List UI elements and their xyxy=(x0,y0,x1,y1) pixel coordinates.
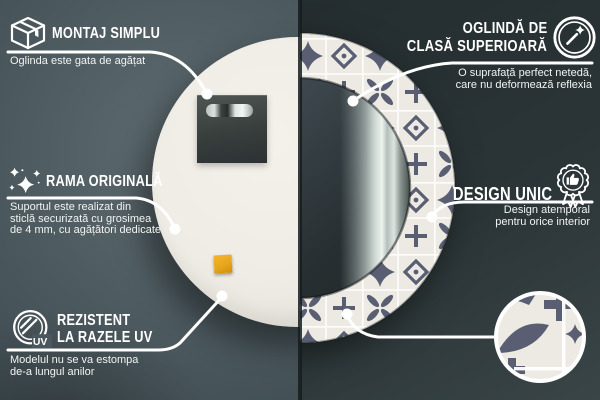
callout-montaj: MONTAJ SIMPLU xyxy=(10,17,187,50)
callout-uv-subtitle: Modelul nu se va estompa de-a lungul ani… xyxy=(10,355,138,378)
dot-rama xyxy=(170,224,181,235)
callout-design-title: DESIGN UNIC xyxy=(431,184,552,205)
callout-uv-title: REZISTENT LA RAZELE UV xyxy=(57,312,176,346)
callout-oglinda-title: OGLINDĂ DE CLASĂ SUPERIOARĂ xyxy=(376,20,547,55)
callout-rama: RAMA ORIGINALĂ xyxy=(8,167,192,197)
callout-design-subtitle: Design atemporal pentru orice interior xyxy=(495,205,590,228)
callout-rama-title: RAMA ORIGINALĂ xyxy=(46,173,192,191)
callout-uv: UV REZISTENT LA RAZELE UV xyxy=(12,309,176,349)
mirror-product-infographic: MONTAJ SIMPLU Oglinda este gata de agăța… xyxy=(0,0,600,400)
callout-oglinda-subtitle: O suprafață perfect netedă, care nu defo… xyxy=(456,68,592,91)
mirror-shine-icon xyxy=(552,15,597,60)
package-box-icon xyxy=(10,17,46,50)
dot-design xyxy=(427,212,438,223)
callout-rama-subtitle: Suportul este realizat din sticlă securi… xyxy=(10,202,161,237)
dot-montaj xyxy=(202,89,213,100)
callout-montaj-subtitle: Oglinda este gata de agățat xyxy=(10,56,145,68)
connector-detail xyxy=(347,314,496,337)
callout-montaj-title: MONTAJ SIMPLU xyxy=(52,25,187,43)
callout-oglinda: OGLINDĂ DE CLASĂ SUPERIOARĂ xyxy=(376,15,597,60)
dot-uv xyxy=(217,291,228,302)
dot-oglinda xyxy=(348,96,359,107)
sparkles-icon xyxy=(8,167,42,197)
dot-detail xyxy=(342,309,353,320)
pattern-detail-magnifier xyxy=(495,289,587,384)
uv-protection-icon: UV xyxy=(12,309,52,349)
uv-label: UV xyxy=(33,337,48,348)
